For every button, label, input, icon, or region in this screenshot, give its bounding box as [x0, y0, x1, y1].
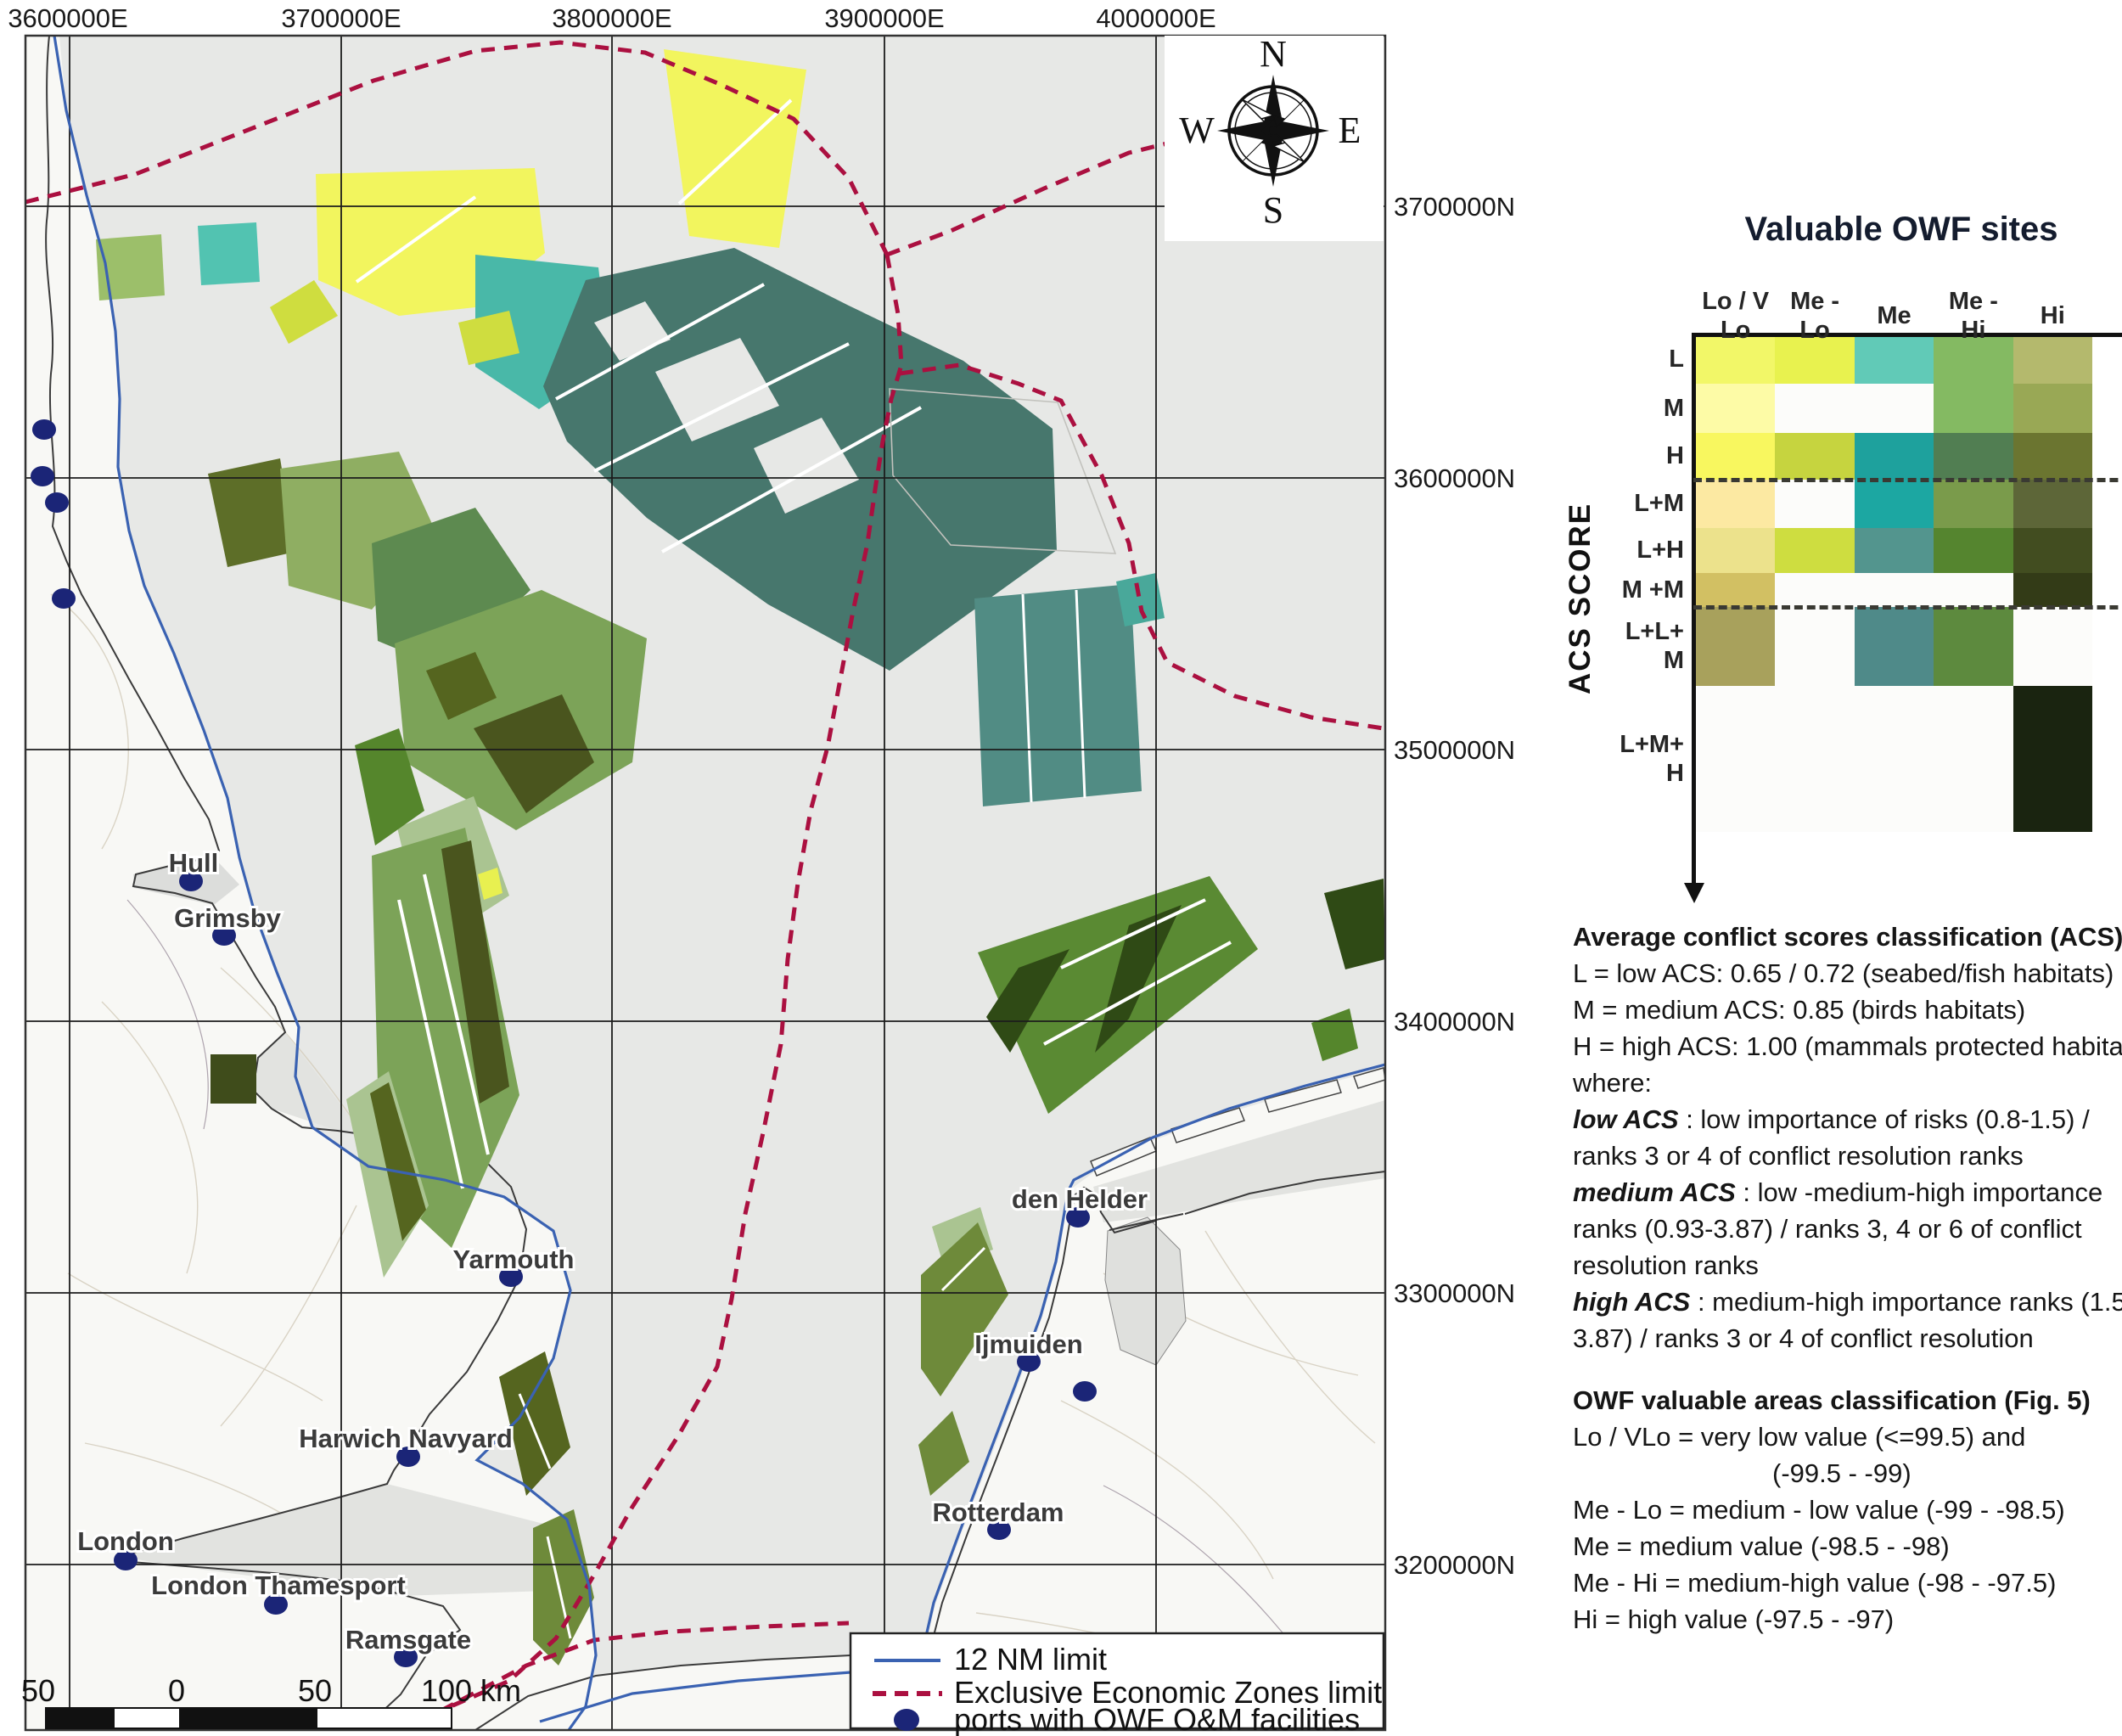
legend-ports-label: ports with OWF O&M facilities [954, 1702, 1360, 1736]
text-line: OWF valuable areas classification (Fig. … [1573, 1382, 2122, 1419]
compass-west-label: W [1179, 110, 1215, 151]
scale-label-3: 100 km [421, 1673, 521, 1708]
port-label: Grimsby [174, 903, 282, 933]
matrix-cell [1696, 607, 1775, 686]
panel-title: Valuable OWF sites [1664, 211, 2122, 249]
matrix-row-label: L+M [1538, 489, 1684, 518]
matrix-cell [1696, 433, 1775, 480]
matrix-y-axis-arrow [1684, 883, 1704, 903]
matrix-cell [1775, 573, 1854, 607]
top-axis-label: 4000000E [1096, 3, 1215, 33]
matrix-cell [1934, 607, 2013, 686]
text-line: Me - Lo = medium - low value (-99 - -98.… [1573, 1492, 2122, 1528]
matrix-cell [1775, 607, 1854, 686]
matrix-separator-2 [1693, 605, 2122, 610]
text-line: 3.87) / ranks 3 or 4 of conflict resolut… [1573, 1320, 2122, 1357]
right-axis-label: 3600000N [1394, 463, 1515, 493]
scale-label-0: 50 [21, 1673, 55, 1708]
matrix-cell [2013, 384, 2092, 433]
matrix-cell [1934, 528, 2013, 573]
matrix-cell [1855, 686, 1934, 832]
text-line: Me - Hi = medium-high value (-98 - -97.5… [1573, 1565, 2122, 1601]
matrix-cell [1775, 384, 1854, 433]
compass-south-label: S [1263, 189, 1283, 231]
port-dot [1073, 1381, 1097, 1402]
matrix-cell [1934, 433, 2013, 480]
port-dot [45, 492, 69, 513]
compass-north-label: N [1260, 33, 1287, 75]
text-line: high ACS : medium-high importance ranks … [1573, 1284, 2122, 1320]
port-dot [31, 466, 54, 486]
matrix-row-label: L+H [1538, 536, 1684, 565]
matrix-row-label: M [1538, 394, 1684, 423]
top-axis-label: 3700000E [281, 3, 401, 33]
text-line: H = high ACS: 1.00 (mammals protected ha… [1573, 1028, 2122, 1065]
matrix-cell [1696, 480, 1775, 528]
matrix-cell [1696, 528, 1775, 573]
matrix-cell [1855, 384, 1934, 433]
port-label: London Thamesport [151, 1570, 406, 1600]
matrix-row-label: L [1538, 345, 1684, 374]
matrix-cell [2013, 686, 2092, 832]
matrix-cell [1775, 686, 1854, 832]
text-line: medium ACS : low -medium-high importance [1573, 1174, 2122, 1211]
text-line: ranks (0.93-3.87) / ranks 3, 4 or 6 of c… [1573, 1211, 2122, 1247]
port-label: Ramsgate [345, 1625, 471, 1655]
port-label: Harwich Navyard [299, 1424, 513, 1453]
matrix-row-label: M +M [1538, 576, 1684, 604]
right-axis-label: 3700000N [1394, 192, 1515, 222]
port-label: London [77, 1526, 174, 1556]
text-line: low ACS : low importance of risks (0.8-1… [1573, 1101, 2122, 1138]
matrix-cell [1696, 384, 1775, 433]
matrix-cell [1855, 573, 1934, 607]
matrix-cell [2013, 480, 2092, 528]
matrix-row-label: L+L+ M [1538, 617, 1684, 675]
compass-east-label: E [1339, 110, 1361, 151]
compass-rose-icon: N S W E [1165, 33, 1384, 241]
port-dot [52, 588, 76, 609]
legend-nm-limit-label: 12 NM limit [954, 1642, 1107, 1677]
acs-classification-text: Average conflict scores classification (… [1573, 919, 2122, 1357]
matrix-row-label: L+M+ H [1538, 730, 1684, 788]
matrix-separator-1 [1693, 478, 2122, 482]
text-line: Me = medium value (-98.5 - -98) [1573, 1528, 2122, 1565]
matrix-cell [2013, 607, 2092, 686]
matrix-cell [1934, 480, 2013, 528]
text-line: Lo / VLo = very low value (<=99.5) and [1573, 1419, 2122, 1455]
matrix-cell [1855, 433, 1934, 480]
matrix-cell [1775, 433, 1854, 480]
matrix-cell [1696, 686, 1775, 832]
owf-classification-text: OWF valuable areas classification (Fig. … [1573, 1382, 2122, 1638]
matrix-cell [2013, 573, 2092, 607]
port-label: Ijmuiden [974, 1329, 1082, 1359]
port-label: Yarmouth [453, 1244, 575, 1274]
matrix-cell [1696, 573, 1775, 607]
top-axis-label: 3600000E [8, 3, 127, 33]
text-line: Hi = high value (-97.5 - -97) [1573, 1601, 2122, 1638]
figure: { "map": { "top_axis": ["3600000E", "370… [0, 0, 2122, 1736]
matrix-cell [2013, 335, 2092, 384]
matrix-cell [1775, 480, 1854, 528]
text-line: M = medium ACS: 0.85 (birds habitats) [1573, 992, 2122, 1028]
matrix-cell [2013, 528, 2092, 573]
scale-label-1: 0 [168, 1673, 185, 1708]
map-legend: 12 NM limit Exclusive Economic Zones lim… [850, 1633, 1384, 1736]
text-line: Average conflict scores classification (… [1573, 919, 2122, 955]
right-axis-label: 3200000N [1394, 1550, 1515, 1580]
port-dot [32, 419, 56, 440]
matrix-cell [1934, 573, 2013, 607]
port-label: Rotterdam [932, 1497, 1064, 1527]
port-dot-sample [894, 1709, 919, 1731]
port-label: Hull [169, 848, 219, 878]
matrix-row-label: H [1538, 441, 1684, 470]
matrix-column-header: Hi [2001, 301, 2103, 330]
right-axis-label: 3500000N [1394, 735, 1515, 765]
right-axis-label: 3400000N [1394, 1007, 1515, 1037]
right-axis-label: 3300000N [1394, 1278, 1515, 1308]
top-axis-label: 3800000E [552, 3, 671, 33]
text-line: ranks 3 or 4 of conflict resolution rank… [1573, 1138, 2122, 1174]
matrix-cell [1934, 686, 2013, 832]
matrix-cell [1855, 480, 1934, 528]
text-line: resolution ranks [1573, 1247, 2122, 1284]
scale-label-2: 50 [298, 1673, 332, 1708]
port-label: den Helder [1012, 1184, 1148, 1214]
matrix-cell [1855, 528, 1934, 573]
text-line: (-99.5 - -99) [1573, 1455, 2122, 1492]
matrix-cell [2013, 433, 2092, 480]
text-line: L = low ACS: 0.65 / 0.72 (seabed/fish ha… [1573, 955, 2122, 992]
matrix-cell [1775, 528, 1854, 573]
text-line: where: [1573, 1065, 2122, 1101]
matrix-cell [1855, 607, 1934, 686]
top-axis-label: 3900000E [824, 3, 944, 33]
matrix-cell [1934, 384, 2013, 433]
